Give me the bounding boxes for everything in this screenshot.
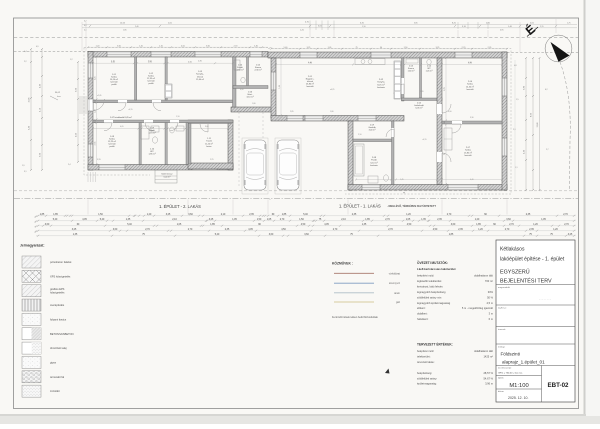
svg-text:1,4: 1,4 <box>24 51 27 53</box>
svg-text:2,10: 2,10 <box>159 45 163 47</box>
svg-text:4,05: 4,05 <box>82 219 87 221</box>
svg-text:1,20: 1,20 <box>533 224 538 226</box>
svg-text:alaprajz_1.épület_01: alaprajz_1.épület_01 <box>502 360 545 365</box>
svg-text:legkisebb telekterület: legkisebb telekterület <box>417 279 442 283</box>
svg-text:EGYSZERŰ: EGYSZERŰ <box>500 269 530 276</box>
svg-text:1,35: 1,35 <box>421 219 426 221</box>
svg-text:1,9: 1,9 <box>22 165 25 167</box>
svg-text:2,70: 2,70 <box>145 229 150 231</box>
svg-text:3,10 m²: 3,10 m² <box>246 96 253 99</box>
svg-text:12,35 m²: 12,35 m² <box>147 77 155 80</box>
svg-text:2,70: 2,70 <box>444 87 446 91</box>
svg-text:8,25 m²: 8,25 m² <box>377 83 385 86</box>
svg-text:5,95: 5,95 <box>468 63 472 65</box>
svg-text:2,35: 2,35 <box>225 229 230 231</box>
svg-text:4,5 m: 4,5 m <box>487 301 494 305</box>
svg-text:34,02: 34,02 <box>55 92 61 94</box>
svg-text:3,60: 3,60 <box>206 45 210 47</box>
svg-text:BFm = 730,00 + bsz.f.sz.: BFm = 730,00 + bsz.f.sz. <box>499 373 524 375</box>
svg-text:1,05: 1,05 <box>541 219 546 221</box>
svg-text:2,10: 2,10 <box>341 219 346 221</box>
svg-text:laminált: laminált <box>307 85 314 88</box>
svg-text:hátsókert:: hátsókert: <box>417 317 429 321</box>
svg-text:2,70: 2,70 <box>564 224 569 226</box>
svg-text:3,30: 3,30 <box>470 117 474 119</box>
svg-text:2,4: 2,4 <box>68 164 71 166</box>
svg-text:tervező:: tervező: <box>498 328 506 331</box>
svg-text:1,75: 1,75 <box>567 22 571 24</box>
svg-text:5,40: 5,40 <box>254 45 258 47</box>
svg-text:x4,25: x4,25 <box>330 89 334 91</box>
svg-text:3,60: 3,60 <box>117 45 121 47</box>
svg-text:2,15: 2,15 <box>540 26 544 28</box>
svg-text:2,70: 2,70 <box>280 219 285 221</box>
svg-text:50 %: 50 % <box>487 295 494 299</box>
svg-text:tervezett lakás:: tervezett lakás: <box>417 360 435 364</box>
svg-text:- - - - - - - -: - - - - - - - - <box>539 298 551 301</box>
svg-text:1,20: 1,20 <box>139 45 143 47</box>
svg-text:5,40: 5,40 <box>303 214 308 216</box>
svg-text:30%: 30% <box>488 290 494 294</box>
svg-text:14,65: 14,65 <box>120 23 126 25</box>
svg-text:1,35: 1,35 <box>126 219 131 221</box>
svg-text:6,40 m²: 6,40 m² <box>164 175 171 178</box>
svg-text:áram: áram <box>394 292 400 295</box>
svg-text:Fürdő: Fürdő <box>149 129 155 132</box>
svg-text:2,95: 2,95 <box>148 61 152 63</box>
svg-text:1,20: 1,20 <box>478 229 483 231</box>
svg-text:1,2: 1,2 <box>70 59 73 61</box>
svg-text:1,85: 1,85 <box>282 214 287 216</box>
svg-text:3,60: 3,60 <box>451 224 456 226</box>
svg-text:0,90: 0,90 <box>240 89 244 91</box>
svg-text:zöldfelületi arány:: zöldfelületi arány: <box>417 376 437 380</box>
svg-text:Kétlakásos: Kétlakásos <box>500 247 525 253</box>
svg-text:3,40 m²: 3,40 m² <box>369 129 376 132</box>
svg-text:M1:100: M1:100 <box>509 383 528 389</box>
svg-text:3,60: 3,60 <box>506 219 511 221</box>
svg-text:beton: beton <box>206 145 211 148</box>
svg-text:kerámia: kerámia <box>370 164 378 167</box>
svg-text:terv.felv.szintje:: terv.felv.szintje: <box>498 367 512 370</box>
svg-text:lépték:: lépték: <box>498 377 504 380</box>
svg-text:fedett terasz: fedett terasz <box>161 173 172 176</box>
svg-text:XPS hőszigetelés: XPS hőszigetelés <box>50 274 71 278</box>
svg-text:Fürdő: Fürdő <box>237 66 243 69</box>
svg-text:épületmagasság:: épületmagasság: <box>417 382 437 386</box>
svg-text:4,50: 4,50 <box>301 224 306 226</box>
svg-text:1,10: 1,10 <box>176 116 180 118</box>
svg-text:75: 75 <box>355 47 357 49</box>
svg-text:x: x <box>270 199 271 201</box>
svg-text:1,05: 1,05 <box>232 219 237 221</box>
svg-text:13,40: 13,40 <box>537 122 539 128</box>
svg-text:1,45 m²: 1,45 m² <box>426 70 433 73</box>
svg-text:szennyvíz: szennyvíz <box>389 282 401 285</box>
svg-text:ÖVEZETI MUTATÓK:: ÖVEZETI MUTATÓK: <box>417 260 448 265</box>
svg-text:zúzottkő: zúzottkő <box>50 389 60 393</box>
svg-text:7,70: 7,70 <box>308 63 312 65</box>
svg-text:1,05: 1,05 <box>267 219 272 221</box>
svg-text:1,20: 1,20 <box>406 214 411 216</box>
svg-text:3,25: 3,25 <box>95 76 97 80</box>
svg-text:terméskő fal: terméskő fal <box>50 375 65 379</box>
svg-text:telekterület:: telekterület: <box>417 354 431 358</box>
svg-text:0,9: 0,9 <box>36 46 39 48</box>
svg-text:+0,15: +0,15 <box>128 109 133 111</box>
svg-text:TERVEZETT ÉRTÉKEK:: TERVEZETT ÉRTÉKEK: <box>417 342 453 347</box>
svg-text:Jelmagyarázat:: Jelmagyarázat: <box>20 244 45 248</box>
svg-text:1,85: 1,85 <box>123 30 127 32</box>
svg-text:2,70: 2,70 <box>505 229 510 231</box>
svg-text:5,40: 5,40 <box>53 219 58 221</box>
svg-text:28,57 %: 28,57 % <box>483 371 493 375</box>
svg-text:6,2: 6,2 <box>545 89 548 91</box>
svg-text:3,85: 3,85 <box>414 22 418 24</box>
svg-text:3,25: 3,25 <box>72 229 77 231</box>
svg-text:Fenti közművek telken belül bi: Fenti közművek telken belül biztosította… <box>332 315 378 319</box>
svg-text:- MEGLÉVŐ, TÉRKÉPEN FELTÜNTETE: - MEGLÉVŐ, TÉRKÉPEN FELTÜNTETETT <box>387 205 436 208</box>
svg-text:laminált: laminált <box>111 81 118 84</box>
svg-text:4,05: 4,05 <box>120 126 124 128</box>
svg-text:folyami kavics: folyami kavics <box>50 317 67 321</box>
svg-text:1,60 m²: 1,60 m² <box>408 70 415 73</box>
svg-text:4,50: 4,50 <box>95 119 97 123</box>
svg-text:cserépfedés: cserépfedés <box>50 303 65 307</box>
svg-text:2,10: 2,10 <box>221 214 226 216</box>
svg-text:700 m²: 700 m² <box>485 279 493 283</box>
svg-text:5 m - megelőzőleg igazodó: 5 m - megelőzőleg igazodó <box>462 306 494 310</box>
svg-text:2,35: 2,35 <box>529 229 534 231</box>
svg-text:2,35: 2,35 <box>526 214 531 216</box>
svg-text:1425 m²: 1425 m² <box>483 354 493 358</box>
svg-text:6,10 m²: 6,10 m² <box>370 161 377 164</box>
svg-text:hrsz.: hrsz. <box>57 95 62 98</box>
svg-text:3,60: 3,60 <box>188 214 193 216</box>
svg-text:Kamra: Kamra <box>255 66 262 69</box>
svg-text:1,50: 1,50 <box>299 219 304 221</box>
svg-text:14,30 m²: 14,30 m² <box>466 85 474 88</box>
svg-text:15,40 m²: 15,40 m² <box>196 78 204 81</box>
svg-text:legnagyobb beépítettség: legnagyobb beépítettség <box>417 290 446 294</box>
svg-text:1,85: 1,85 <box>40 214 45 216</box>
svg-text:oldalhatáron álló: oldalhatáron álló <box>474 274 494 278</box>
svg-text:2,70: 2,70 <box>234 45 238 47</box>
svg-text:5,40: 5,40 <box>127 224 132 226</box>
svg-text:1,85: 1,85 <box>476 224 481 226</box>
svg-text:0,90: 0,90 <box>448 111 452 113</box>
svg-text:2,10: 2,10 <box>358 134 362 136</box>
svg-text:KÖZMŰVEK :: KÖZMŰVEK : <box>332 261 353 266</box>
svg-text:4,50: 4,50 <box>433 229 438 231</box>
svg-text:4,80: 4,80 <box>198 61 202 63</box>
svg-text:gipsz: gipsz <box>50 360 57 364</box>
svg-text:6 m: 6 m <box>489 317 493 321</box>
svg-text:legnagyobb épületmagasság: legnagyobb épületmagasság <box>417 301 451 305</box>
svg-text:2,70: 2,70 <box>385 219 390 221</box>
svg-text:2,2: 2,2 <box>24 61 27 63</box>
svg-text:3 m: 3 m <box>489 312 493 316</box>
svg-text:megrendelő:: megrendelő: <box>498 286 511 289</box>
svg-text:3,25: 3,25 <box>436 47 440 49</box>
svg-text:4,05: 4,05 <box>248 229 253 231</box>
svg-text:15,95: 15,95 <box>29 97 31 103</box>
svg-text:4,10: 4,10 <box>111 61 115 63</box>
svg-text:1,05: 1,05 <box>328 47 332 49</box>
svg-text:3,60: 3,60 <box>45 224 50 226</box>
svg-text:4,50: 4,50 <box>281 229 286 231</box>
svg-text:2,70: 2,70 <box>462 47 466 49</box>
svg-text:3,60: 3,60 <box>304 234 309 236</box>
svg-text:4,05: 4,05 <box>324 224 329 226</box>
svg-text:2,35: 2,35 <box>437 219 442 221</box>
svg-text:Fürdő: Fürdő <box>371 159 377 162</box>
svg-text:hőszigetelés: hőszigetelés <box>50 290 65 294</box>
svg-text:1.07 közlekedő 8,45 m²: 1.07 közlekedő 8,45 m² <box>110 116 132 119</box>
svg-text:3,25: 3,25 <box>166 214 171 216</box>
svg-text:2,70: 2,70 <box>447 214 452 216</box>
svg-text:2,70: 2,70 <box>509 224 514 226</box>
svg-text:1,80: 1,80 <box>330 111 334 113</box>
svg-text:laminált: laminált <box>465 154 472 157</box>
svg-text:3,25: 3,25 <box>307 47 311 49</box>
svg-text:2,10: 2,10 <box>172 219 177 221</box>
svg-text:1,05: 1,05 <box>406 219 411 221</box>
svg-text:1,35: 1,35 <box>362 224 367 226</box>
svg-text:3,25: 3,25 <box>209 219 214 221</box>
svg-text:lakóépület építése - 1. épület: lakóépület építése - 1. épület <box>500 257 565 263</box>
svg-text:5,40: 5,40 <box>100 219 105 221</box>
svg-text:3,60: 3,60 <box>113 229 118 231</box>
svg-text:2,85: 2,85 <box>290 111 294 113</box>
svg-text:6,05 m²: 6,05 m² <box>416 107 423 110</box>
svg-text:vízhálózat: vízhálózat <box>389 272 401 275</box>
svg-text:1,20: 1,20 <box>420 91 424 93</box>
svg-text:1,20: 1,20 <box>553 229 558 231</box>
svg-text:étkező: étkező <box>307 80 314 83</box>
svg-text:tömörített talaj: tömörített talaj <box>50 346 67 350</box>
svg-text:54,67 %: 54,67 % <box>483 376 493 380</box>
svg-text:2,35: 2,35 <box>95 142 97 146</box>
svg-text:BETON/VASBETON: BETON/VASBETON <box>50 332 74 336</box>
svg-text:laminált: laminált <box>467 88 474 91</box>
svg-text:1,45: 1,45 <box>400 179 404 181</box>
svg-text:+0,15: +0,15 <box>422 139 427 141</box>
svg-text:2,30 m²: 2,30 m² <box>254 69 261 72</box>
svg-text:2,35: 2,35 <box>458 229 463 231</box>
svg-text:4,50: 4,50 <box>407 224 412 226</box>
svg-text:tervlap:: tervlap: <box>498 346 506 349</box>
svg-text:1,85: 1,85 <box>210 224 215 226</box>
svg-text:1,50: 1,50 <box>404 47 408 49</box>
svg-text:kertvárosi, lakó fekvés: kertvárosi, lakó fekvés <box>417 284 443 288</box>
svg-text:laminált: laminált <box>109 143 116 146</box>
svg-text:dátum:: dátum: <box>498 390 505 393</box>
svg-text:2,25: 2,25 <box>210 159 214 161</box>
svg-text:3,95: 3,95 <box>97 159 101 161</box>
svg-text:3,60: 3,60 <box>205 126 209 128</box>
svg-text:EBT-02: EBT-02 <box>548 382 570 389</box>
svg-text:1,35: 1,35 <box>73 234 78 236</box>
svg-text:1,85: 1,85 <box>449 234 454 236</box>
svg-text:2,35: 2,35 <box>488 47 492 49</box>
svg-text:26,80 m²: 26,80 m² <box>306 83 314 86</box>
svg-text:1,35: 1,35 <box>279 85 281 89</box>
svg-text:1,80: 1,80 <box>252 103 256 105</box>
svg-text:Lke8 kertvárosias lakóterület: Lke8 kertvárosias lakóterület <box>417 267 456 271</box>
svg-text:3,60: 3,60 <box>95 99 97 103</box>
svg-text:1,50: 1,50 <box>257 219 262 221</box>
svg-text:Házt.: Házt. <box>248 93 253 96</box>
svg-text:0,8: 0,8 <box>514 65 517 67</box>
svg-text:13,85 m²: 13,85 m² <box>464 151 472 154</box>
svg-text:13,25 m²: 13,25 m² <box>108 140 116 143</box>
svg-text:3,1: 3,1 <box>24 171 27 173</box>
svg-text:1,05: 1,05 <box>177 224 182 226</box>
svg-text:2,70: 2,70 <box>333 229 338 231</box>
svg-text:beépítettség:: beépítettség: <box>417 371 432 375</box>
svg-text:90: 90 <box>380 47 382 49</box>
svg-text:beépítési mód:: beépítési mód: <box>417 349 434 353</box>
svg-text:laminált: laminált <box>148 80 155 83</box>
svg-text:1,1: 1,1 <box>515 167 518 169</box>
svg-text:2025. 12. 10.: 2025. 12. 10. <box>508 396 528 400</box>
svg-text:4,40: 4,40 <box>470 179 474 181</box>
svg-text:előkert:: előkert: <box>417 306 426 310</box>
svg-text:3,60: 3,60 <box>269 234 274 236</box>
svg-text:kerámia: kerámia <box>377 87 385 89</box>
svg-text:1. ÉPÜLET - 1. LAKÁS: 1. ÉPÜLET - 1. LAKÁS <box>339 203 381 208</box>
svg-text:2,70: 2,70 <box>188 229 193 231</box>
svg-text:Földszinti: Földszinti <box>501 352 520 357</box>
svg-text:1,5: 1,5 <box>516 99 519 101</box>
svg-text:2,40: 2,40 <box>135 26 139 28</box>
svg-text:1,20: 1,20 <box>95 109 97 113</box>
svg-text:2,7: 2,7 <box>546 149 549 151</box>
svg-text:grafitos EPS: grafitos EPS <box>50 287 65 291</box>
svg-text:11,20 m²: 11,20 m² <box>205 142 213 145</box>
svg-text:2,70: 2,70 <box>388 229 393 231</box>
svg-text:4,05: 4,05 <box>181 45 185 47</box>
svg-text:1,20: 1,20 <box>96 45 100 47</box>
svg-text:16,10 m²: 16,10 m² <box>110 78 118 81</box>
svg-text:zöldfelületi arány min: zöldfelületi arány min <box>417 295 442 299</box>
svg-text:BEJELENTÉSI TERV: BEJELENTÉSI TERV <box>500 278 552 285</box>
svg-text:1. ÉPÜLET - 2. LAKÁS: 1. ÉPÜLET - 2. LAKÁS <box>159 204 201 209</box>
svg-text:3,25: 3,25 <box>568 234 573 236</box>
svg-text:étkező: étkező <box>197 75 204 78</box>
svg-text:2,70: 2,70 <box>563 214 568 216</box>
svg-text:75: 75 <box>444 153 446 155</box>
svg-text:5,40: 5,40 <box>284 47 288 49</box>
svg-text:x2,45: x2,45 <box>97 95 101 97</box>
svg-text:1,85: 1,85 <box>365 219 370 221</box>
svg-text:1,20: 1,20 <box>147 214 152 216</box>
svg-text:táj./hrsz.:: táj./hrsz.: <box>498 307 507 310</box>
svg-text:oldalkert:: oldalkert: <box>417 312 428 316</box>
svg-text:0,95: 0,95 <box>500 30 504 32</box>
svg-text:2,35: 2,35 <box>352 214 357 216</box>
svg-text:5,40: 5,40 <box>215 234 220 236</box>
svg-text:beépítési mód:: beépítési mód: <box>417 274 434 278</box>
svg-text:1,85 m²: 1,85 m² <box>148 153 155 156</box>
svg-text:4,65: 4,65 <box>188 61 192 63</box>
svg-text:1,50: 1,50 <box>98 214 103 216</box>
svg-text:1,20: 1,20 <box>475 219 480 221</box>
svg-text:pórusbeton falazat: pórusbeton falazat <box>50 260 72 264</box>
svg-text:2,35: 2,35 <box>249 214 254 216</box>
svg-text:1,10: 1,10 <box>362 26 366 28</box>
svg-text:90: 90 <box>444 121 446 123</box>
svg-text:1,85: 1,85 <box>53 214 58 216</box>
svg-text:3,96 m: 3,96 m <box>485 382 493 386</box>
svg-text:oldalhatáron álló: oldalhatáron álló <box>474 349 494 353</box>
